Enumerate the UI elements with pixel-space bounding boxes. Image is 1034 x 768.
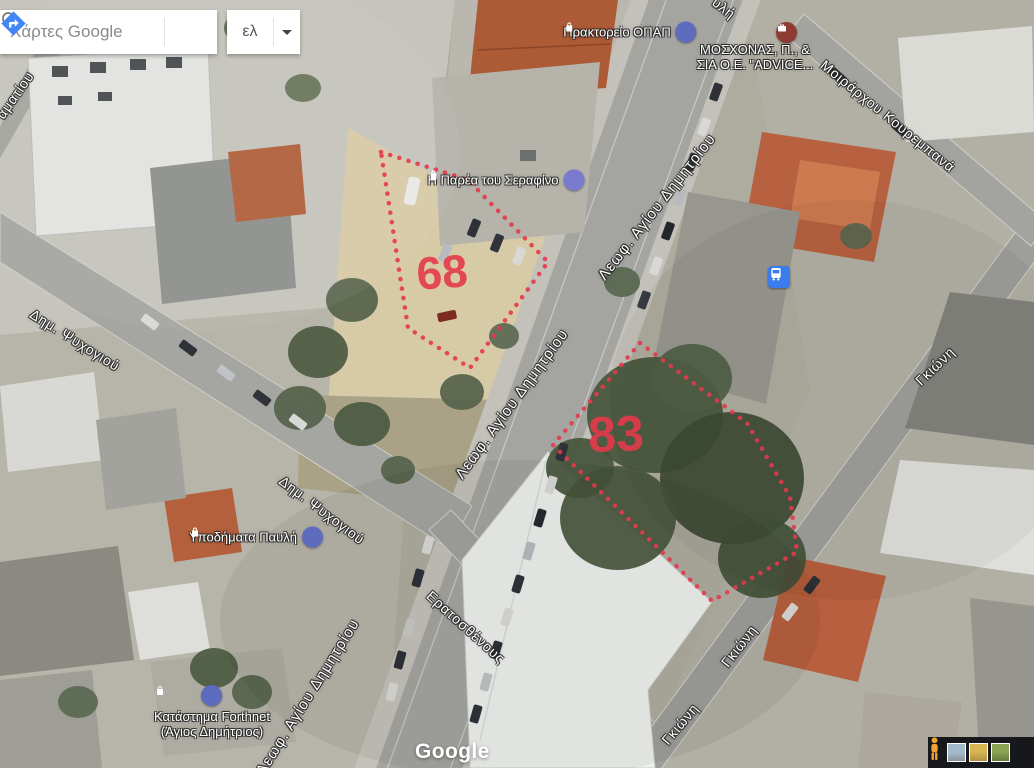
streetview-imagery-bar[interactable] xyxy=(928,737,1034,768)
poi-opap[interactable]: Πρακτορείο ΟΠΑΠ xyxy=(563,22,696,43)
poi-moschonas[interactable]: ΜΟΣΧΟΝΑΣ, Π., & ΣΙΑ Ο.Ε. "ADVICE... xyxy=(697,42,814,72)
search-icon[interactable] xyxy=(130,10,164,54)
poi-moschonas-line2: ΣΙΑ Ο.Ε. "ADVICE... xyxy=(697,57,814,72)
google-watermark: Google xyxy=(415,740,490,764)
imagery-thumbnail[interactable] xyxy=(969,743,988,762)
shopping-bag-icon xyxy=(676,22,697,43)
poi-pavli[interactable]: Υποδήματα Παυλή xyxy=(189,527,323,548)
plot-68-number: 68 xyxy=(415,243,470,300)
shopping-bag-icon xyxy=(563,170,584,191)
poi-forthnet[interactable]: Κατάστημα Forthnet (Άγιος Δημήτριος) xyxy=(154,685,270,739)
poi-serafino-label: Η Παρέα του Σεραφίνο xyxy=(428,173,559,188)
search-box[interactable] xyxy=(0,10,217,54)
building-corner-bottomleft xyxy=(0,670,102,768)
building-white-rightedge xyxy=(898,26,1034,142)
poi-pavli-label: Υποδήματα Παυλή xyxy=(189,530,297,545)
building-dark-bottomleft xyxy=(0,546,134,676)
imagery-thumbnail[interactable] xyxy=(947,743,966,762)
imagery-thumbnail[interactable] xyxy=(991,743,1010,762)
poi-forthnet-line2: (Άγιος Δημήτριος) xyxy=(161,724,263,739)
plot-83-number: 83 xyxy=(587,404,645,464)
directions-diamond-icon[interactable] xyxy=(165,10,217,54)
poi-forthnet-line1: Κατάστημα Forthnet xyxy=(154,709,270,724)
bus-stop-icon[interactable] xyxy=(768,266,790,288)
building-white-bottomleft xyxy=(128,582,210,660)
briefcase-icon[interactable] xyxy=(776,22,797,43)
building-white-leftmid xyxy=(0,372,104,472)
language-code: ελ xyxy=(227,23,273,41)
poi-opap-label: Πρακτορείο ΟΠΑΠ xyxy=(563,25,670,40)
poi-serafino[interactable]: Η Παρέα του Σεραφίνο xyxy=(428,170,585,191)
language-selector[interactable]: ελ xyxy=(227,10,300,54)
poi-moschonas-line1: ΜΟΣΧΟΝΑΣ, Π., & xyxy=(700,42,810,57)
building-gray-leftmid xyxy=(96,408,186,510)
caret-down-icon[interactable] xyxy=(274,10,300,54)
shopping-bag-icon xyxy=(201,685,222,706)
shopping-bag-icon xyxy=(302,527,323,548)
map-viewport[interactable]: 68 83 αματίου υλή Δημ. Ψυχογιού Δημ. Ψυχ… xyxy=(0,0,1034,768)
rooftop-unit xyxy=(520,150,536,161)
